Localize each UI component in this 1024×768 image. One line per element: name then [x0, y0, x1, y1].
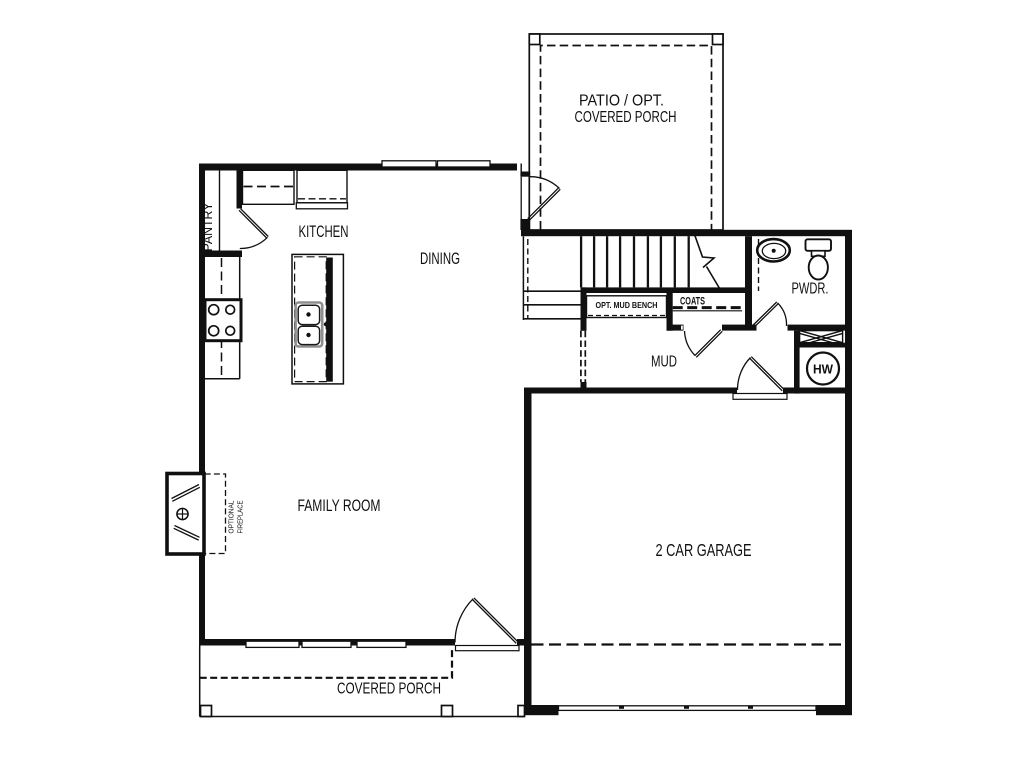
svg-text:HW: HW	[813, 362, 834, 377]
svg-text:2 CAR GARAGE: 2 CAR GARAGE	[656, 540, 752, 560]
svg-text:FAMILY ROOM: FAMILY ROOM	[298, 496, 381, 515]
svg-text:PANTRY: PANTRY	[201, 202, 215, 252]
svg-text:OPTIONAL: OPTIONAL	[227, 501, 236, 534]
svg-text:COVERED PORCH: COVERED PORCH	[337, 681, 441, 698]
svg-text:OPT. MUD BENCH: OPT. MUD BENCH	[596, 301, 658, 310]
svg-text:FIREPLACE: FIREPLACE	[236, 500, 245, 533]
svg-text:PATIO / OPT.: PATIO / OPT.	[579, 93, 664, 110]
svg-text:KITCHEN: KITCHEN	[299, 222, 349, 241]
svg-text:COATS: COATS	[680, 296, 705, 308]
svg-text:COVERED PORCH: COVERED PORCH	[575, 109, 677, 126]
svg-text:PWDR.: PWDR.	[792, 281, 829, 298]
svg-text:MUD: MUD	[651, 354, 677, 371]
svg-text:DINING: DINING	[420, 249, 460, 268]
